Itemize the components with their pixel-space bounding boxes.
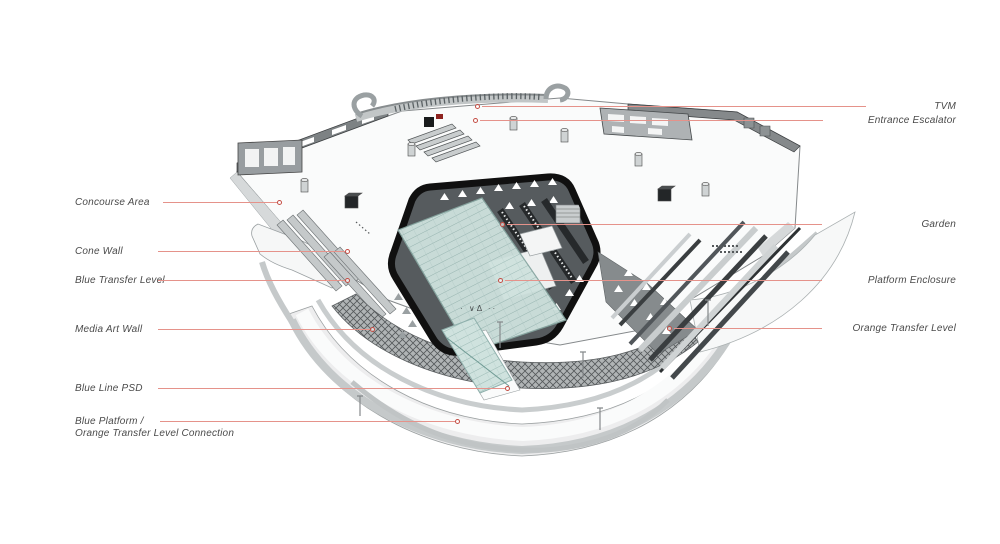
label-tvm: TVM xyxy=(934,101,956,113)
leader-blue-platform-connection xyxy=(160,421,455,422)
leader-platform-enclosure xyxy=(505,280,822,281)
marker-platform-enclosure xyxy=(498,278,503,283)
leader-tvm xyxy=(482,106,866,107)
label-blue-line-psd: Blue Line PSD xyxy=(75,383,143,395)
leader-cone-wall xyxy=(158,251,345,252)
marker-media-art-wall xyxy=(370,327,375,332)
label-garden: Garden xyxy=(921,219,956,231)
leader-orange-transfer-level xyxy=(674,328,822,329)
marker-orange-transfer-level xyxy=(667,326,672,331)
station-axonometric-illustration: · ∨Δ ·· xyxy=(0,0,1000,544)
marker-cone-wall xyxy=(345,249,350,254)
label-blue-transfer-level: Blue Transfer Level xyxy=(75,275,165,287)
leader-media-art-wall xyxy=(158,329,370,330)
logo-marks: · ∨Δ ·· xyxy=(460,304,497,313)
label-entrance-escalator: Entrance Escalator xyxy=(868,115,956,127)
label-orange-transfer-level: Orange Transfer Level xyxy=(852,323,956,335)
marker-blue-platform-connection xyxy=(455,419,460,424)
leader-garden xyxy=(507,224,822,225)
marker-garden xyxy=(500,222,505,227)
marker-tvm xyxy=(475,104,480,109)
marker-entrance-escalator xyxy=(473,118,478,123)
label-concourse-area: Concourse Area xyxy=(75,197,150,209)
label-platform-enclosure: Platform Enclosure xyxy=(868,275,956,287)
marker-concourse-area xyxy=(277,200,282,205)
leader-blue-transfer-level xyxy=(158,280,345,281)
leader-concourse-area xyxy=(163,202,277,203)
leader-blue-line-psd xyxy=(158,388,505,389)
label-blue-platform-connection: Blue Platform / Orange Transfer Level Co… xyxy=(75,416,234,440)
leader-entrance-escalator xyxy=(480,120,823,121)
label-cone-wall: Cone Wall xyxy=(75,246,123,258)
diagram-page: · ∨Δ ·· Concourse Area Cone Wall Blue Tr… xyxy=(0,0,1000,544)
marker-blue-transfer-level xyxy=(345,278,350,283)
label-media-art-wall: Media Art Wall xyxy=(75,324,142,336)
marker-blue-line-psd xyxy=(505,386,510,391)
